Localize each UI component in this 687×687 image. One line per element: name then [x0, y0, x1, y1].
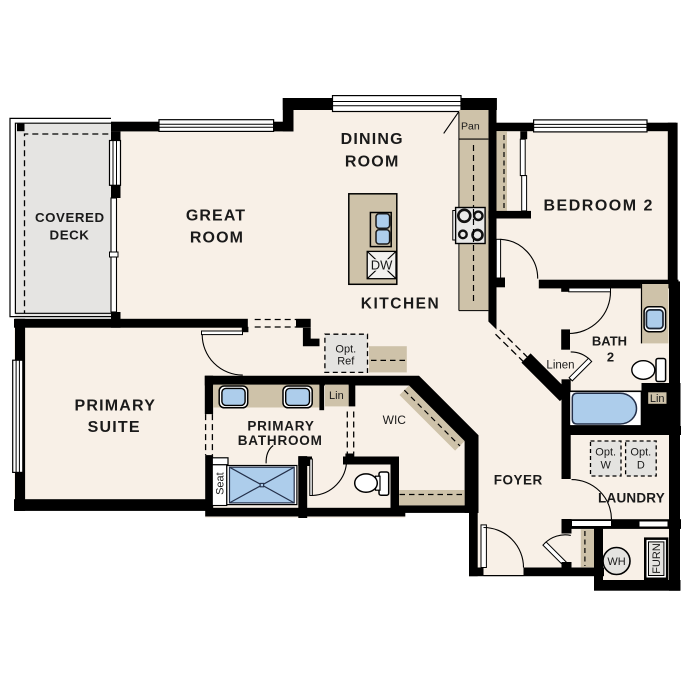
svg-text:Linen: Linen	[546, 360, 574, 372]
svg-text:WH: WH	[607, 556, 625, 568]
svg-text:DECK: DECK	[50, 227, 90, 242]
svg-text:LAUNDRY: LAUNDRY	[598, 491, 665, 506]
svg-text:Opt.: Opt.	[335, 343, 356, 355]
svg-text:Seat: Seat	[215, 472, 227, 495]
svg-text:Opt.: Opt.	[595, 447, 616, 459]
svg-text:Pan: Pan	[461, 121, 480, 133]
svg-text:FOYER: FOYER	[494, 472, 543, 487]
svg-text:DINING: DINING	[341, 131, 404, 148]
svg-text:DW: DW	[371, 258, 393, 273]
svg-text:ROOM: ROOM	[345, 153, 400, 170]
svg-text:BATHROOM: BATHROOM	[238, 433, 323, 448]
svg-text:Ref: Ref	[337, 356, 355, 368]
svg-text:PRIMARY: PRIMARY	[247, 418, 314, 433]
svg-text:W: W	[601, 460, 612, 472]
svg-text:Opt.: Opt.	[630, 447, 651, 459]
svg-text:Lin: Lin	[650, 393, 665, 405]
svg-text:WIC: WIC	[383, 413, 407, 427]
svg-text:GREAT: GREAT	[186, 207, 246, 224]
svg-text:BEDROOM 2: BEDROOM 2	[543, 197, 653, 214]
svg-text:Lin: Lin	[329, 390, 344, 402]
svg-text:2: 2	[607, 349, 614, 364]
svg-text:FURN: FURN	[651, 543, 663, 574]
svg-text:KITCHEN: KITCHEN	[361, 295, 440, 312]
svg-text:ROOM: ROOM	[190, 229, 244, 246]
svg-text:D: D	[637, 460, 645, 472]
svg-text:COVERED: COVERED	[35, 210, 105, 225]
svg-text:SUITE: SUITE	[88, 419, 141, 436]
svg-text:PRIMARY: PRIMARY	[75, 397, 157, 414]
svg-text:BATH: BATH	[592, 333, 627, 348]
